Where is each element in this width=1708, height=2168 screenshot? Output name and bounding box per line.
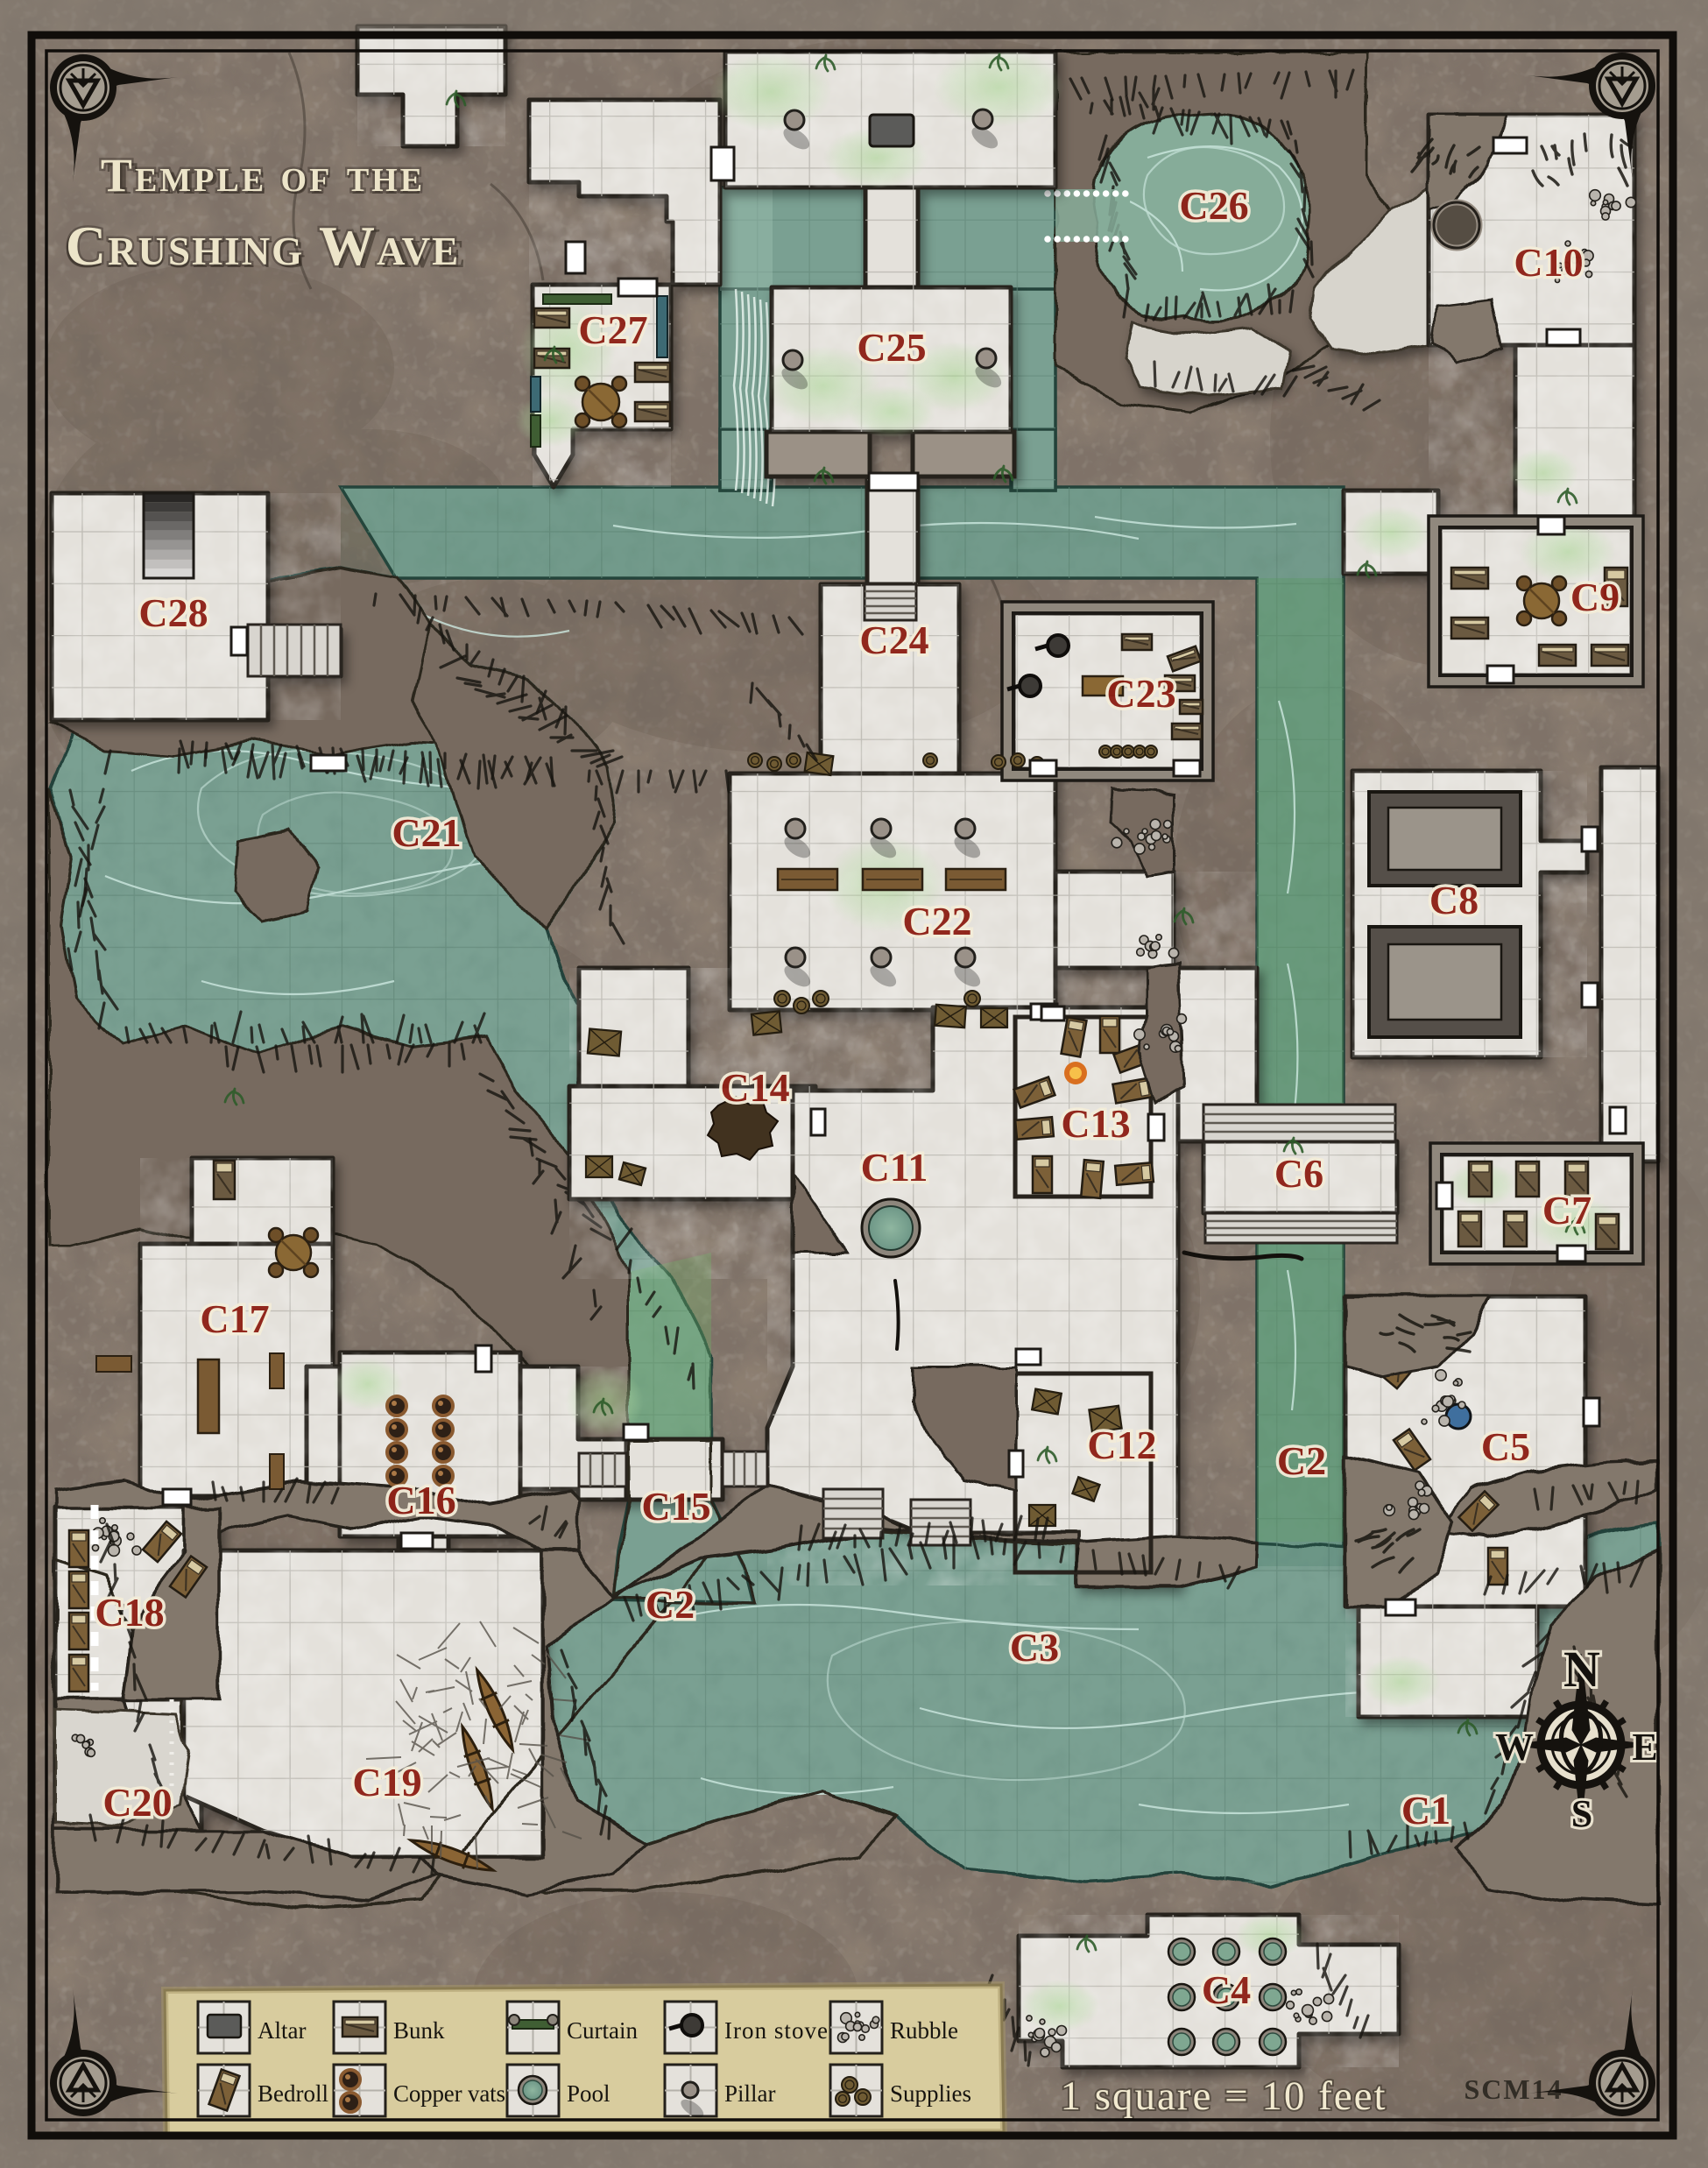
svg-text:Crushing Wave: Crushing Wave	[66, 215, 460, 277]
svg-text:C16: C16	[386, 1478, 455, 1522]
svg-text:Iron stove: Iron stove	[724, 2017, 828, 2044]
svg-text:C15: C15	[641, 1484, 710, 1529]
svg-text:SCM14: SCM14	[1464, 2073, 1563, 2105]
svg-text:Copper vats: Copper vats	[393, 2080, 505, 2107]
svg-text:C23: C23	[1106, 671, 1175, 716]
svg-text:Rubble: Rubble	[890, 2017, 958, 2044]
svg-text:C22: C22	[902, 899, 971, 943]
svg-text:C7: C7	[1542, 1188, 1592, 1232]
svg-text:C2: C2	[1277, 1438, 1326, 1483]
svg-text:C12: C12	[1087, 1423, 1156, 1467]
svg-text:C10: C10	[1514, 240, 1583, 285]
svg-text:C5: C5	[1481, 1424, 1530, 1469]
svg-text:Supplies: Supplies	[890, 2080, 971, 2107]
svg-text:Bedroll: Bedroll	[258, 2080, 328, 2107]
svg-text:C14: C14	[720, 1065, 789, 1110]
svg-text:Pool: Pool	[567, 2080, 611, 2107]
svg-text:C1: C1	[1401, 1788, 1450, 1833]
svg-text:C17: C17	[200, 1296, 269, 1341]
svg-text:C18: C18	[95, 1590, 164, 1635]
svg-text:C6: C6	[1274, 1151, 1323, 1196]
svg-text:C3: C3	[1010, 1625, 1059, 1670]
svg-text:C13: C13	[1061, 1101, 1130, 1146]
svg-text:C8: C8	[1429, 878, 1479, 922]
svg-text:C21: C21	[392, 810, 461, 855]
svg-text:C27: C27	[578, 307, 647, 352]
svg-text:Curtain: Curtain	[567, 2017, 638, 2044]
svg-text:C20: C20	[102, 1780, 172, 1825]
svg-text:C11: C11	[861, 1145, 928, 1190]
svg-text:N: N	[1563, 1641, 1600, 1698]
svg-text:Altar: Altar	[258, 2017, 306, 2044]
svg-text:W: W	[1495, 1726, 1534, 1769]
svg-text:C4: C4	[1202, 1967, 1251, 2012]
svg-text:E: E	[1632, 1726, 1657, 1769]
svg-text:Temple of the: Temple of the	[101, 149, 425, 201]
svg-text:C24: C24	[859, 618, 928, 662]
svg-text:Pillar: Pillar	[724, 2080, 776, 2107]
svg-text:Bunk: Bunk	[393, 2017, 445, 2044]
svg-text:1 square = 10 feet: 1 square = 10 feet	[1060, 2073, 1387, 2119]
svg-text:C9: C9	[1570, 575, 1620, 619]
svg-text:C28: C28	[138, 590, 208, 635]
svg-text:S: S	[1571, 1792, 1592, 1835]
svg-text:C2: C2	[646, 1582, 695, 1627]
svg-text:C25: C25	[857, 325, 926, 370]
svg-text:C19: C19	[352, 1760, 421, 1804]
svg-text:C26: C26	[1179, 183, 1248, 228]
